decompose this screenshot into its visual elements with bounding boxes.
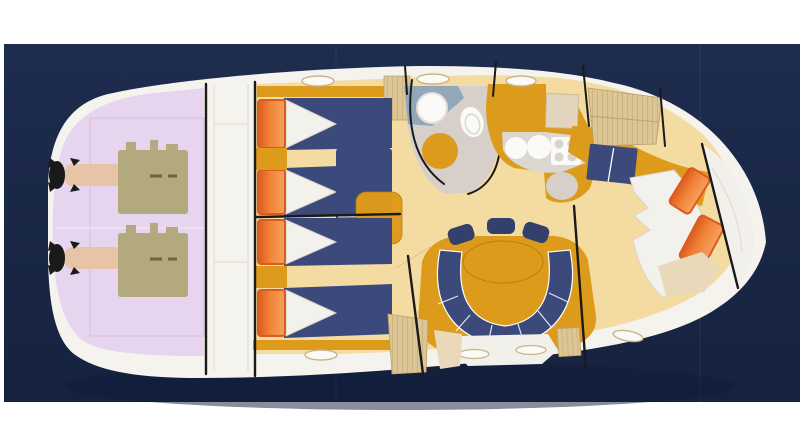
pillow [258, 290, 285, 336]
engine-detail [150, 140, 158, 154]
engine-block [118, 233, 188, 297]
cabin-shelf-stripe [253, 340, 413, 350]
step-block [557, 327, 581, 356]
engine-detail [166, 144, 178, 154]
dinette-table [463, 241, 543, 283]
pillow [487, 218, 515, 234]
engine-room-floor [53, 88, 204, 356]
counter-end [546, 172, 578, 200]
nightstand [254, 148, 287, 170]
nightstand [254, 266, 287, 288]
engine-detail [150, 223, 158, 237]
porthole [305, 350, 337, 360]
cabin-shelf-stripe [257, 86, 384, 97]
engine-block [118, 150, 188, 214]
prop-shaft [64, 247, 124, 269]
porthole [302, 76, 334, 86]
porthole [417, 74, 449, 84]
engine-detail [126, 142, 136, 154]
yacht-deck-plan [0, 0, 800, 446]
stove-burner [555, 153, 564, 162]
pillow [258, 220, 285, 264]
prop-shaft [64, 164, 124, 186]
galley-cabinet [545, 93, 578, 128]
shower-basin [422, 133, 458, 169]
pillow [258, 100, 285, 148]
deck-hatch [459, 350, 489, 359]
porthole [506, 76, 536, 86]
stove-burner [555, 140, 564, 149]
galley-sink [527, 135, 551, 159]
engine-detail [126, 225, 136, 237]
engine-detail [166, 227, 178, 237]
deck-hatch [516, 346, 546, 355]
galley-sink [505, 137, 527, 159]
scanned-photo [0, 0, 800, 446]
pillow [258, 170, 285, 214]
sink [417, 93, 447, 123]
